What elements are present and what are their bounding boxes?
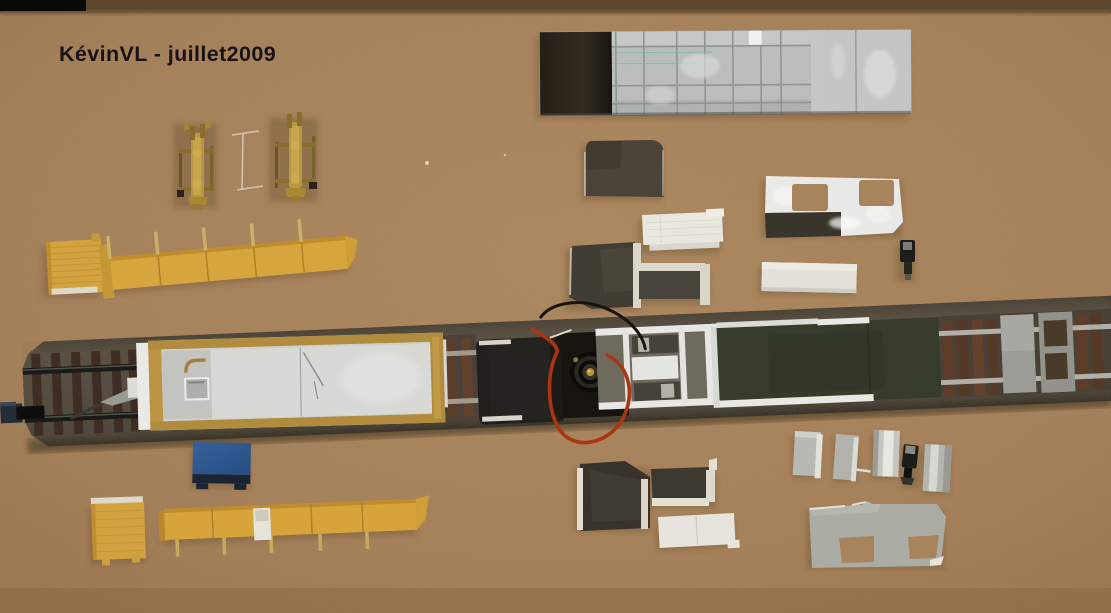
svg-text:KévinVL - juillet2009: KévinVL - juillet2009	[59, 42, 276, 66]
